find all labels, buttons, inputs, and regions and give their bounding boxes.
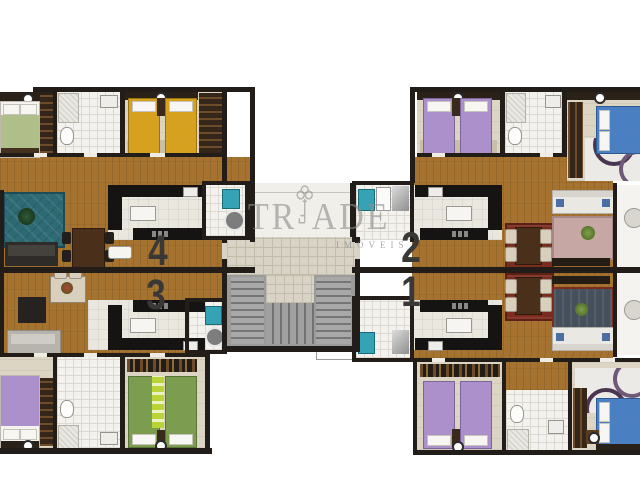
wall <box>202 181 206 240</box>
plant <box>18 208 35 225</box>
single-bed <box>460 98 492 155</box>
wall <box>53 357 57 450</box>
sink <box>545 95 561 108</box>
toilet <box>510 405 524 423</box>
wall <box>0 273 4 353</box>
wall <box>0 353 210 357</box>
watermark-brand-left: TR <box>248 198 297 236</box>
door-opening <box>540 153 553 157</box>
wall <box>413 358 417 454</box>
watermark-subtitle: IMÓVEIS <box>336 240 409 250</box>
shower <box>58 93 79 123</box>
kitchen-sink <box>428 341 443 351</box>
kitchen-counter <box>488 305 502 350</box>
door-opening <box>540 358 553 362</box>
dining-table <box>72 228 105 269</box>
shelf-unit <box>420 364 500 377</box>
wall <box>185 350 227 354</box>
chair <box>105 232 114 244</box>
shelf-unit <box>127 359 197 372</box>
floorplan-canvas: ✻ ✻ <box>0 0 640 480</box>
bed-blanket <box>1 376 39 426</box>
door-opening <box>600 358 615 362</box>
stair-flight <box>231 277 264 344</box>
chair <box>540 229 552 244</box>
bed-blanket <box>1 115 39 148</box>
party-wall <box>0 267 255 273</box>
unit-3-number: 3 <box>146 274 166 317</box>
door-opening <box>84 153 97 157</box>
kitchen-counter <box>108 185 122 230</box>
kitchen-counter <box>488 185 502 230</box>
shower <box>507 429 529 451</box>
centerpiece <box>61 282 73 294</box>
kitchen-sink <box>183 187 198 197</box>
stove-metallic <box>392 186 409 211</box>
wall <box>222 87 227 183</box>
dryer <box>224 210 245 231</box>
door-opening <box>84 353 97 357</box>
wall <box>120 87 125 157</box>
door-opening <box>150 153 165 157</box>
dresser <box>0 359 30 370</box>
double-bed <box>0 375 40 450</box>
stair-flight <box>266 303 314 344</box>
door-opening <box>34 353 47 357</box>
chair <box>540 279 552 294</box>
wall <box>613 273 617 357</box>
sink <box>100 432 118 445</box>
wall <box>185 298 189 354</box>
washer <box>222 189 240 209</box>
double-bed <box>596 106 640 154</box>
chair <box>505 229 517 244</box>
stove <box>452 303 470 309</box>
stair-landing <box>266 275 314 303</box>
wardrobe <box>40 95 53 153</box>
sink <box>548 420 564 434</box>
wall <box>352 358 414 362</box>
wall <box>410 87 640 92</box>
double-bed <box>596 398 640 446</box>
watermark-brand-right: ADE <box>312 198 390 236</box>
door-opening <box>150 353 165 357</box>
stove-metallic <box>392 330 409 354</box>
shower <box>58 425 79 449</box>
wall <box>562 87 567 157</box>
wall <box>413 450 640 455</box>
wall <box>205 357 210 450</box>
single-bed <box>460 381 492 449</box>
dining-table <box>515 227 542 265</box>
shower <box>506 93 526 123</box>
wall <box>120 357 125 450</box>
wardrobe <box>199 93 222 155</box>
toilet <box>508 127 522 145</box>
sofa <box>552 190 614 214</box>
pouf <box>581 226 595 240</box>
chair <box>540 297 552 312</box>
balcony-table <box>624 300 640 320</box>
kitchen-island <box>130 206 156 221</box>
wall <box>0 190 4 268</box>
toilet <box>60 400 74 418</box>
wall-light-icon <box>594 92 606 104</box>
dining-table <box>515 277 542 315</box>
wall <box>410 87 415 183</box>
wall <box>352 181 414 185</box>
wall <box>568 362 572 452</box>
door-opening <box>222 243 227 259</box>
wall <box>613 183 617 267</box>
sofa <box>5 242 58 266</box>
single-bed <box>423 98 455 155</box>
chair <box>62 232 71 244</box>
chair <box>505 247 517 262</box>
sofa <box>552 327 614 351</box>
plant <box>575 303 588 316</box>
table-lamp-icon <box>588 432 600 444</box>
kitchen-island <box>446 206 472 221</box>
wall <box>352 296 356 362</box>
side-table <box>108 246 132 259</box>
single-bed <box>128 98 160 155</box>
watermark: TR ADE <box>248 194 390 240</box>
single-bed <box>165 98 197 155</box>
chair <box>540 247 552 262</box>
wall <box>502 362 506 452</box>
party-wall <box>352 267 640 273</box>
wall <box>222 346 360 352</box>
bed-runner <box>152 376 164 428</box>
sofa <box>7 330 61 355</box>
elevator-ledge <box>316 351 354 360</box>
chair <box>505 279 517 294</box>
wall <box>0 448 212 454</box>
sink <box>100 95 118 108</box>
wall <box>53 87 57 157</box>
kitchen-island <box>446 318 472 333</box>
wardrobe <box>568 102 583 178</box>
single-bed <box>165 376 197 448</box>
tv-cabinet <box>552 258 610 266</box>
kitchen-counter <box>108 305 122 350</box>
wall <box>500 87 505 157</box>
washer <box>205 306 222 325</box>
door-opening <box>432 153 445 157</box>
chair <box>62 250 71 262</box>
kitchen-island <box>130 318 156 333</box>
tv-rug <box>18 297 46 323</box>
washer <box>358 332 375 354</box>
double-bed <box>0 101 40 158</box>
wall <box>185 298 227 302</box>
nightstand <box>157 98 165 116</box>
stove <box>452 231 470 237</box>
nightstand <box>452 98 460 116</box>
door-opening <box>34 153 47 157</box>
wardrobe <box>40 378 53 446</box>
toilet <box>60 127 74 145</box>
door-opening <box>432 358 445 362</box>
kitchen-sink <box>428 187 443 197</box>
tv-cabinet <box>552 276 610 284</box>
unit-4-number: 4 <box>148 230 168 273</box>
chair <box>505 297 517 312</box>
stair-flight <box>316 277 351 344</box>
wardrobe <box>573 388 587 448</box>
single-bed <box>423 381 455 449</box>
balcony-table <box>624 208 640 228</box>
unit-1-number: 1 <box>401 271 421 314</box>
